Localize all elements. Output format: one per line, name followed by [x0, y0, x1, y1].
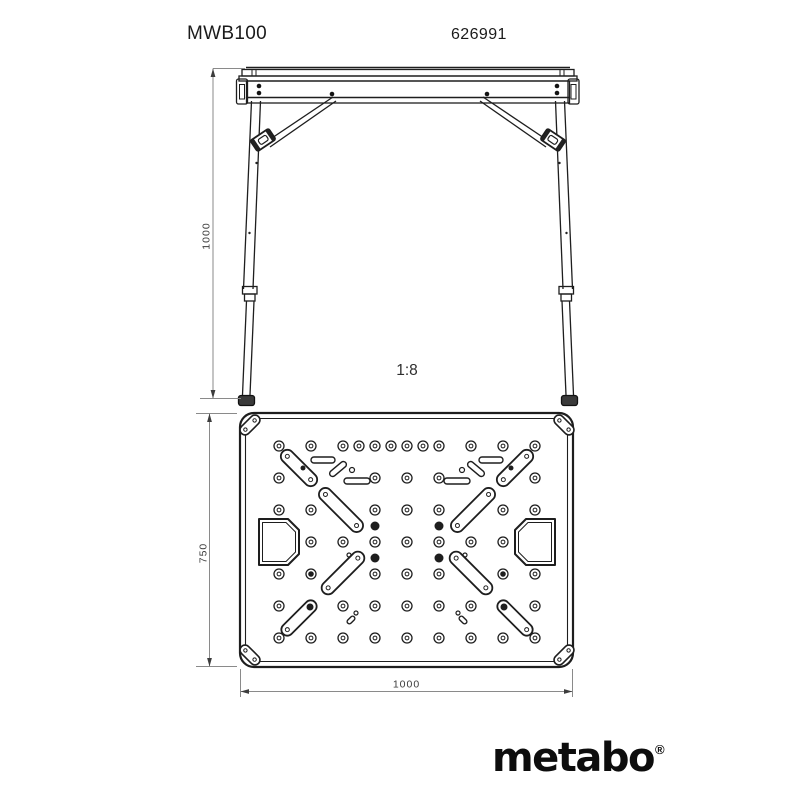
- clamping-hole: [370, 633, 380, 643]
- clamping-hole: [338, 441, 348, 451]
- clamping-slot: [444, 478, 470, 484]
- clamping-hole: [434, 537, 444, 547]
- clamping-hole: [338, 537, 348, 547]
- clamping-hole: [530, 473, 540, 483]
- clamping-slot: [344, 478, 370, 484]
- clamping-hole: [354, 441, 364, 451]
- clamping-hole: [530, 569, 540, 579]
- front-view-drawing: [237, 68, 580, 406]
- clamping-hole: [370, 473, 380, 483]
- clamping-hole: [370, 569, 380, 579]
- clamping-hole: [370, 505, 380, 515]
- right-brace: [480, 97, 566, 152]
- clamping-hole: [402, 633, 412, 643]
- locating-pin: [435, 554, 444, 563]
- right-brace-clamp: [540, 128, 566, 151]
- clamping-hole: [466, 441, 476, 451]
- clamping-hole: [434, 633, 444, 643]
- clamping-hole: [434, 505, 444, 515]
- clamping-slot: [311, 457, 335, 463]
- clamping-hole: [530, 601, 540, 611]
- clamping-hole: [370, 441, 380, 451]
- clamping-hole: [498, 441, 508, 451]
- clamping-hole: [402, 441, 412, 451]
- locating-pin: [435, 522, 444, 531]
- clamping-hole: [434, 569, 444, 579]
- handle-cutout: [259, 519, 299, 565]
- clamping-hole: [402, 569, 412, 579]
- depth-dimension-label: 750: [198, 543, 210, 564]
- scale-label: 1:8: [396, 362, 418, 379]
- locating-pin: [371, 522, 380, 531]
- clamping-hole: [274, 601, 284, 611]
- clamping-hole: [306, 441, 316, 451]
- clamping-hole: [530, 441, 540, 451]
- width-dimension: 1000: [241, 669, 573, 697]
- pivot-hole-center: [500, 571, 506, 577]
- clamping-hole: [498, 505, 508, 515]
- technical-drawing: 1000 1:8 750 1000: [0, 0, 800, 800]
- clamping-hole: [466, 633, 476, 643]
- clamping-hole: [274, 569, 284, 579]
- clamping-hole: [306, 537, 316, 547]
- width-dimension-label: 1000: [393, 679, 420, 691]
- clamping-hole: [418, 441, 428, 451]
- clamping-hole: [402, 505, 412, 515]
- clamping-hole: [386, 441, 396, 451]
- clamping-hole: [274, 505, 284, 515]
- locating-pin: [371, 554, 380, 563]
- slot-lock-mark: [307, 604, 314, 611]
- top-view-drawing: [238, 413, 576, 667]
- clamping-hole: [434, 473, 444, 483]
- registered-mark: ®: [655, 742, 665, 757]
- pivot-hole-center: [308, 571, 314, 577]
- clamping-hole: [338, 633, 348, 643]
- tabletop-profile: [237, 68, 580, 105]
- clamping-hole: [402, 537, 412, 547]
- handle-cutout: [515, 519, 555, 565]
- slot-lock-mark: [509, 466, 514, 471]
- clamping-hole: [466, 537, 476, 547]
- clamping-hole: [466, 601, 476, 611]
- clamping-hole: [306, 633, 316, 643]
- left-brace: [250, 97, 336, 152]
- clamping-hole: [274, 473, 284, 483]
- height-dimension: 1000: [200, 69, 245, 399]
- slot-lock-mark: [501, 604, 508, 611]
- depth-dimension: 750: [196, 414, 237, 667]
- clamping-hole: [498, 537, 508, 547]
- clamping-hole: [434, 441, 444, 451]
- height-dimension-label: 1000: [201, 222, 213, 249]
- clamping-hole: [370, 601, 380, 611]
- clamping-hole: [402, 473, 412, 483]
- clamping-hole: [498, 633, 508, 643]
- clamping-hole: [402, 601, 412, 611]
- clamping-hole: [338, 601, 348, 611]
- tabletop-bolts: [257, 84, 560, 97]
- clamping-hole: [530, 505, 540, 515]
- metabo-logo: metabo®: [492, 735, 664, 781]
- left-brace-clamp: [250, 128, 276, 151]
- clamping-hole: [306, 505, 316, 515]
- slot-lock-mark: [301, 466, 306, 471]
- clamping-hole: [434, 601, 444, 611]
- clamping-slot: [479, 457, 503, 463]
- clamping-hole: [370, 537, 380, 547]
- clamping-hole: [274, 441, 284, 451]
- metabo-logo-text: metabo: [492, 735, 654, 781]
